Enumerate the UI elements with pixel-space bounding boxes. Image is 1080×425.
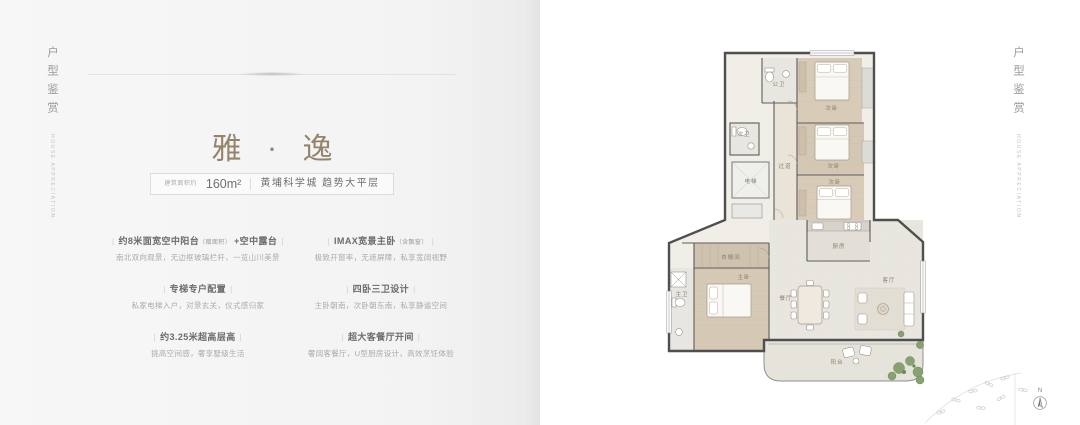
room-label-closet: 衣帽间 (721, 253, 741, 261)
pipe-glyph: | (154, 333, 156, 342)
ac-ledge (862, 141, 874, 163)
feature-subtitle: 挑高空间感，奢享墅级生活 (108, 348, 288, 359)
pipe-glyph: | (341, 333, 343, 342)
bed-icon (817, 186, 851, 219)
feature-item-master: |IMAX宽景主卧（含飘窗）| 极致开窗率，无遮屏障，私享宽阔视野 (302, 234, 460, 263)
feature-title: 约3.25米超高层高 (160, 332, 236, 342)
brochure-right-page: 公卫 次卧 过道 次卧 次卧 次卫 电梯 衣帽间 主卧 主卫 厨房 餐厅 客厅 … (540, 0, 1080, 425)
master-bed-icon (707, 284, 751, 317)
feature-item-balcony: |约8米面宽空中阳台（赠面积） +空中露台| 南北双向观景，无边框玻璃栏杆，一览… (108, 234, 288, 263)
feature-item-rooms: |四卧三卫设计| 主卧朝南，次卧朝东南，私享静谧空间 (302, 282, 460, 311)
room-label-secondary-bath: 次卫 (737, 130, 750, 138)
compass: N (1031, 388, 1049, 417)
pipe-glyph: | (432, 237, 434, 246)
room-label-master-bath: 主卫 (675, 290, 688, 298)
pipe-glyph: | (281, 237, 283, 246)
room-label-corridor: 过道 (778, 162, 791, 170)
room-label-bedroom-b: 次卧 (827, 162, 840, 170)
feature-title: 超大客餐厅开间 (348, 332, 414, 342)
feature-title: 专梯专户配置 (170, 284, 226, 294)
feature-title-row: |IMAX宽景主卧（含飘窗）| (302, 234, 460, 247)
feature-title: 约8米面宽空中阳台 (118, 236, 199, 246)
feature-item-livingroom: |超大客餐厅开间| 奢阔客餐厅，U型厨房设计，高效烹饪体验 (302, 330, 460, 359)
feature-note: （含飘窗） (396, 240, 428, 246)
area-badge: 建筑面积约 160m² 黄埔科学城 趋势大平层 (150, 173, 393, 196)
right-vertical-subtitle: HOUSE APPRECIATION (1015, 134, 1021, 219)
pipe-glyph: | (418, 333, 420, 342)
badge-separator (250, 178, 251, 190)
pipe-glyph: | (240, 333, 242, 342)
feature-subtitle: 主卧朝南，次卧朝东南，私享静谧空间 (302, 300, 460, 311)
pipe-glyph: | (163, 285, 165, 294)
left-vertical-subtitle: HOUSE APPRECIATION (49, 134, 55, 219)
feature-subtitle: 极致开窗率，无遮屏障，私享宽阔视野 (302, 252, 460, 263)
right-vertical-caption: 户型鉴赏 HOUSE APPRECIATION (1010, 46, 1026, 219)
feature-title-row: |约3.25米超高层高| (108, 330, 288, 343)
room-label-elevator: 电梯 (744, 177, 757, 185)
feature-title-row: |超大客餐厅开间| (302, 330, 460, 343)
room-label-bedroom-c: 次卧 (828, 178, 841, 186)
brochure-left-page: 户型鉴赏 HOUSE APPRECIATION 雅 · 逸 建筑面积约 160m… (0, 0, 540, 425)
pipe-glyph: | (413, 285, 415, 294)
feature-list: |约8米面宽空中阳台（赠面积） +空中露台| 南北双向观景，无边框玻璃栏杆，一览… (108, 234, 460, 359)
bed-icon (815, 125, 849, 160)
room-label-master-bedroom: 主卧 (737, 273, 750, 281)
pipe-glyph: | (328, 237, 330, 246)
feature-title: IMAX宽景主卧 (334, 236, 396, 246)
feature-item-ceiling: |约3.25米超高层高| 挑高空间感，奢享墅级生活 (108, 330, 288, 359)
room-label-balcony: 阳台 (830, 358, 843, 366)
feature-title-row: |专梯专户配置| (108, 282, 288, 295)
feature-note: （赠面积） (199, 240, 231, 246)
left-vertical-caption: 户型鉴赏 HOUSE APPRECIATION (44, 46, 60, 219)
corridor-floor (774, 101, 797, 220)
room-label-bedroom-a: 次卧 (825, 104, 838, 112)
wardrobe-icon (799, 127, 806, 155)
ac-ledge (862, 68, 874, 108)
feature-item-elevator: |专梯专户配置| 私家电梯入户，对景玄关，仪式感归家 (108, 282, 288, 311)
pipe-glyph: | (112, 237, 114, 246)
feature-title: 四卧三卫设计 (353, 284, 409, 294)
feature-subtitle: 南北双向观景，无边框玻璃栏杆，一览山川美景 (108, 252, 288, 263)
feature-title-row: |四卧三卫设计| (302, 282, 460, 295)
area-badge-wrap: 建筑面积约 160m² 黄埔科学城 趋势大平层 (88, 172, 456, 195)
location-text: 黄埔科学城 趋势大平层 (260, 179, 379, 189)
area-label: 建筑面积约 (164, 181, 197, 187)
wardrobe-icon (799, 190, 806, 216)
room-label-kitchen: 厨房 (832, 242, 845, 250)
wardrobe-icon (799, 62, 806, 92)
room-label-public-bath: 公卫 (772, 81, 785, 88)
compass-needle-icon (1032, 394, 1048, 412)
page-title: 雅 · 逸 (88, 124, 456, 168)
left-vertical-title: 户型鉴赏 (44, 46, 60, 120)
bed-icon (815, 62, 849, 100)
right-vertical-title: 户型鉴赏 (1010, 46, 1026, 120)
feature-title-row: |约8米面宽空中阳台（赠面积） +空中露台| (108, 234, 288, 247)
kitchen-counter-icon (808, 221, 870, 231)
feature-suffix: +空中露台 (231, 236, 277, 246)
floorplan-image: 公卫 次卧 过道 次卧 次卧 次卫 电梯 衣帽间 主卧 主卫 厨房 餐厅 客厅 … (652, 46, 950, 388)
feature-subtitle: 私家电梯入户，对景玄关，仪式感归家 (108, 300, 288, 311)
pipe-glyph: | (230, 285, 232, 294)
area-value: 160m² (206, 178, 241, 191)
divider-accent (240, 72, 304, 76)
feature-subtitle: 奢阔客餐厅，U型厨房设计，高效烹饪体验 (302, 348, 460, 359)
room-label-living: 客厅 (882, 276, 895, 284)
pipe-glyph: | (346, 285, 348, 294)
room-label-dining: 餐厅 (779, 294, 792, 302)
floral-arc-decoration (923, 364, 1041, 425)
